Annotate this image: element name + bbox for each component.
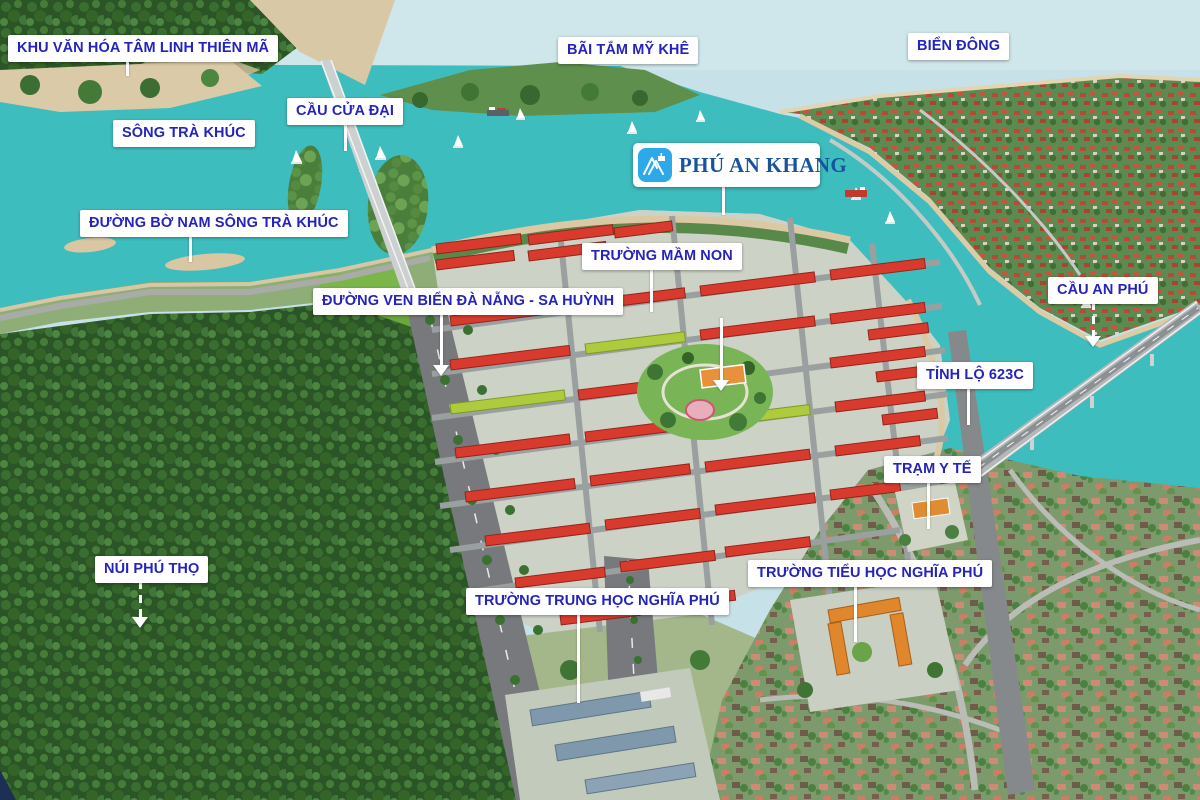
label-tram-y-te: TRẠM Y TẾ [884, 456, 981, 483]
label-truong-trung-hoc: TRƯỜNG TRUNG HỌC NGHĨA PHÚ [466, 588, 729, 615]
label-cau-cua-dai: CẦU CỬA ĐẠI [287, 98, 403, 125]
project-logo-text: PHÚ AN KHANG [679, 153, 847, 178]
label-tinh-lo-623c: TỈNH LỘ 623C [917, 362, 1033, 389]
label-song-tra-khuc: SÔNG TRÀ KHÚC [113, 120, 255, 147]
primary-school [790, 578, 960, 712]
leader-truong-trung-hoc [577, 613, 580, 703]
leader-khu-van-hoa [126, 61, 129, 76]
arrow-cau-an-phu-line [1092, 302, 1095, 336]
label-nui-phu-tho: NÚI PHÚ THỌ [95, 556, 208, 583]
arrow-duong-ven-bien-line [440, 313, 443, 365]
arrow-nui-phu-tho-head [132, 617, 148, 628]
label-duong-ven-bien: ĐƯỜNG VEN BIỂN ĐÀ NẴNG - SA HUỲNH [313, 288, 623, 315]
label-truong-mam-non: TRƯỜNG MẦM NON [582, 243, 742, 270]
leader-truong-mam-non [650, 268, 653, 312]
health-station [895, 482, 968, 552]
label-khu-van-hoa: KHU VĂN HÓA TÂM LINH THIÊN MÃ [8, 35, 278, 62]
leader-truong-tieu-hoc [854, 586, 857, 642]
flower-garden [686, 400, 714, 420]
label-duong-bo-nam: ĐƯỜNG BỜ NAM SÔNG TRÀ KHÚC [80, 210, 348, 237]
arrow-duong-ven-bien-head [433, 365, 449, 376]
phu-an-khang-logo-icon [638, 148, 672, 182]
cargo-ship [487, 107, 509, 116]
leader-logo [722, 186, 725, 215]
label-bien-dong: BIỂN ĐÔNG [908, 33, 1009, 60]
leader-tram-y-te [927, 481, 930, 529]
arrow-cau-an-phu-head [1085, 336, 1101, 347]
central-park [637, 344, 773, 440]
arrow-nui-phu-tho-line [139, 581, 142, 617]
leader-cau-cua-dai [344, 123, 347, 151]
masterplan-image: KHU VĂN HÓA TÂM LINH THIÊN MÃ SÔNG TRÀ K… [0, 0, 1200, 800]
arrow-truong-mam-non-line [720, 318, 723, 380]
label-cau-an-phu: CẦU AN PHÚ [1048, 277, 1158, 304]
project-logo: PHÚ AN KHANG [633, 143, 820, 187]
leader-tinh-lo-623c [967, 387, 970, 425]
leader-duong-bo-nam [189, 236, 192, 262]
label-bai-tam-my-khe: BÃI TẮM MỸ KHÊ [558, 37, 698, 64]
label-truong-tieu-hoc: TRƯỜNG TIỂU HỌC NGHĨA PHÚ [748, 560, 992, 587]
arrow-truong-mam-non-head [713, 380, 729, 391]
